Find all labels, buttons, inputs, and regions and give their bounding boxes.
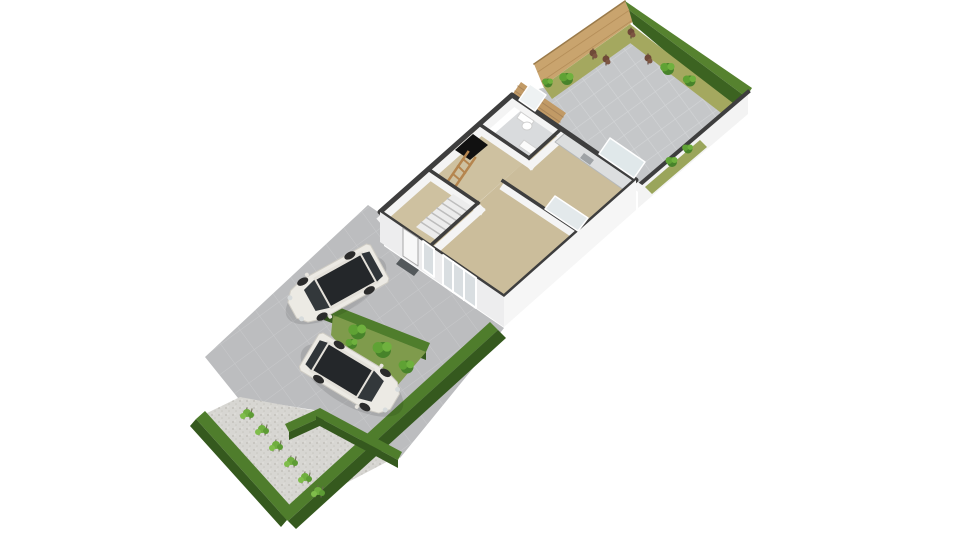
bush-foliage — [559, 73, 567, 81]
shrub-foliage — [277, 444, 283, 450]
bush-foliage — [683, 76, 691, 84]
plant-foliage — [631, 33, 636, 38]
shrub-foliage — [263, 428, 269, 434]
bush-foliage — [689, 76, 696, 83]
plant-foliage — [648, 59, 653, 64]
bush-foliage — [352, 339, 358, 345]
shrub-foliage — [255, 429, 261, 435]
bush-foliage — [666, 157, 673, 164]
bush-foliage — [682, 145, 688, 151]
scene-layers — [190, 1, 752, 529]
floorplan-figure — [0, 0, 960, 540]
plant-foliage — [606, 60, 611, 65]
bush-foliage — [346, 339, 353, 346]
bush-foliage — [667, 63, 674, 70]
bush-foliage — [373, 342, 384, 353]
bush-foliage — [548, 79, 553, 84]
shrub-foliage — [248, 412, 254, 418]
bush-foliage — [566, 73, 573, 80]
floorplan-3d-render — [0, 0, 960, 540]
shrub-foliage — [311, 491, 317, 497]
bush-foliage — [406, 361, 414, 369]
bush-foliage — [688, 145, 693, 150]
bush-foliage — [357, 325, 366, 334]
bush-foliage — [672, 157, 678, 163]
bush-foliage — [399, 361, 408, 370]
bush-foliage — [382, 342, 392, 352]
bush-foliage — [542, 79, 548, 85]
shrub-foliage — [240, 413, 246, 419]
shrub-foliage — [292, 460, 298, 466]
toilet-bowl — [522, 122, 532, 130]
floorplan-stage — [0, 0, 960, 540]
shrub-foliage — [306, 476, 312, 482]
plant-foliage — [593, 54, 598, 59]
shrub-foliage — [269, 445, 275, 451]
shrub-foliage — [298, 477, 304, 483]
shrub-foliage — [284, 461, 290, 467]
bush-foliage — [348, 325, 359, 336]
shrub-foliage — [319, 490, 325, 496]
bush-foliage — [660, 63, 668, 71]
